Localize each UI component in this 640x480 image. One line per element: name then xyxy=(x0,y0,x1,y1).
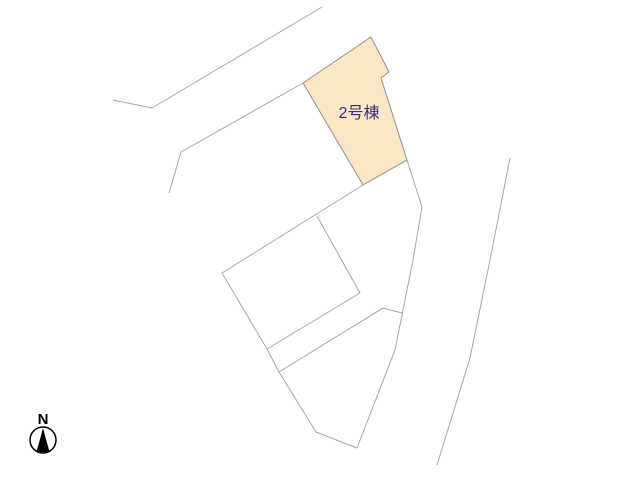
site-plan: 2号棟N xyxy=(0,0,640,480)
parcel-label: 2号棟 xyxy=(339,104,380,122)
compass-needle-icon xyxy=(37,428,50,452)
central-lot-boundary-line xyxy=(222,160,422,448)
inner-lot-split-line xyxy=(279,308,402,372)
compass-north-label: N xyxy=(38,411,49,428)
road-edge-lower-line xyxy=(169,83,303,193)
site-plan-svg: 2号棟N xyxy=(0,0,640,480)
road-edge-upper-line xyxy=(113,7,322,108)
east-boundary-line xyxy=(437,158,510,465)
